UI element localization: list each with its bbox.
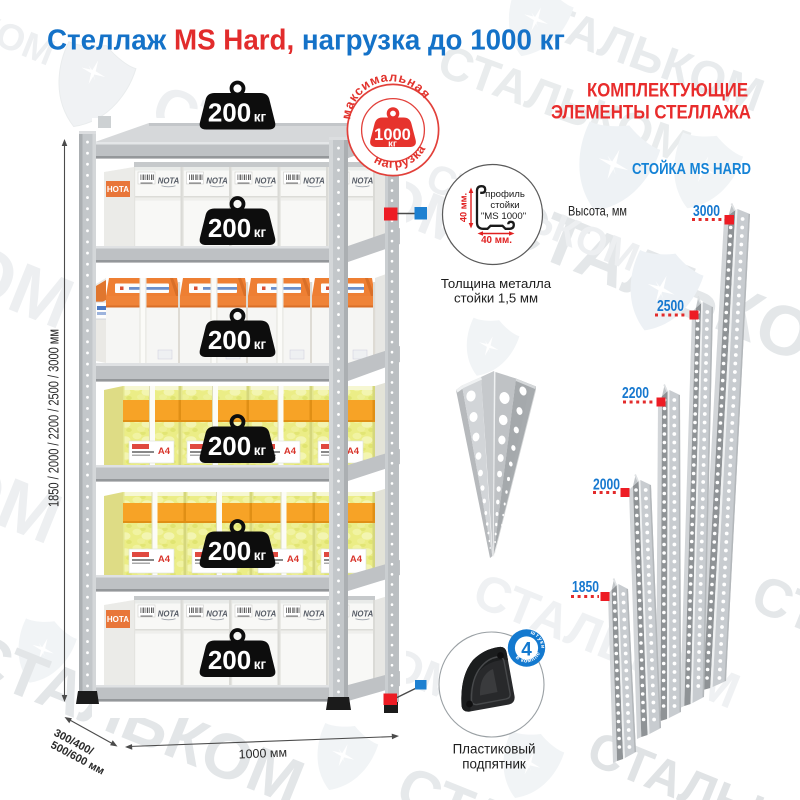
svg-text:КОМПЛЕКТУЮЩИЕ: КОМПЛЕКТУЮЩИЕ: [587, 80, 748, 102]
svg-text:СТАЛЬКОМ: СТАЛЬКОМ: [0, 119, 84, 345]
svg-text:NOTA: NOTA: [303, 610, 325, 619]
svg-text:NOTA: NOTA: [158, 610, 180, 619]
svg-text:A4: A4: [158, 446, 171, 457]
svg-text:NOTA: NOTA: [352, 177, 374, 186]
svg-text:кг: кг: [388, 139, 397, 150]
svg-text:профиль: профиль: [485, 189, 525, 200]
svg-text:A4: A4: [347, 446, 360, 457]
svg-text:A4: A4: [287, 554, 300, 565]
svg-text:A4: A4: [158, 554, 171, 565]
svg-text:НОТА: НОТА: [107, 185, 129, 194]
svg-text:4: 4: [521, 640, 532, 661]
svg-text:НОТА: НОТА: [107, 615, 129, 624]
svg-text:стойки 1,5 мм: стойки 1,5 мм: [454, 291, 538, 306]
svg-text:NOTA: NOTA: [255, 610, 277, 619]
svg-text:3000: 3000: [693, 203, 720, 220]
svg-text:A4: A4: [284, 446, 297, 457]
svg-text:Высота, мм: Высота, мм: [568, 204, 627, 219]
svg-text:NOTA: NOTA: [352, 610, 374, 619]
svg-text:2000: 2000: [593, 477, 620, 494]
svg-text:40 мм.: 40 мм.: [481, 235, 512, 246]
svg-text:СТАЛЬКОМ: СТАЛЬКОМ: [744, 563, 800, 732]
svg-text:Толщина металла: Толщина металла: [441, 276, 552, 291]
svg-text:1850: 1850: [572, 579, 599, 596]
svg-text:ЭЛЕМЕНТЫ СТЕЛЛАЖА: ЭЛЕМЕНТЫ СТЕЛЛАЖА: [551, 102, 751, 124]
svg-text:NOTA: NOTA: [158, 177, 180, 186]
svg-text:1850 / 2000 / 2200 / 2500 / 30: 1850 / 2000 / 2200 / 2500 / 3000 мм: [47, 329, 63, 507]
svg-text:2200: 2200: [622, 385, 649, 402]
svg-text:Стеллаж MS Hard, нагрузка до 1: Стеллаж MS Hard, нагрузка до 1000 кг: [47, 25, 565, 57]
svg-text:1000 мм: 1000 мм: [238, 746, 287, 762]
svg-text:подпятник: подпятник: [462, 757, 526, 772]
svg-text:"MS 1000": "MS 1000": [481, 211, 526, 222]
svg-text:NOTA: NOTA: [206, 610, 228, 619]
svg-text:A4: A4: [350, 554, 363, 565]
svg-text:Пластиковый: Пластиковый: [453, 742, 536, 757]
svg-text:NOTA: NOTA: [206, 177, 228, 186]
svg-text:2500: 2500: [657, 298, 684, 315]
svg-text:NOTA: NOTA: [255, 177, 277, 186]
svg-text:СТОЙКА MS HARD: СТОЙКА MS HARD: [632, 160, 751, 178]
svg-text:стойки: стойки: [490, 200, 519, 211]
svg-text:NOTA: NOTA: [303, 177, 325, 186]
svg-text:40 мм.: 40 мм.: [459, 193, 469, 222]
